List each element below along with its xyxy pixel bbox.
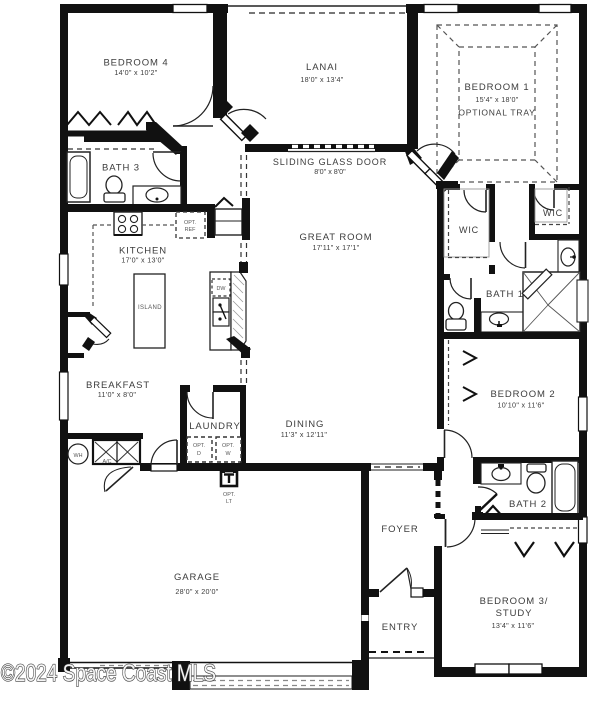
svg-text:11'0" x 8'0": 11'0" x 8'0" bbox=[98, 390, 137, 399]
svg-text:WIC: WIC bbox=[459, 225, 479, 235]
svg-text:OPT.: OPT. bbox=[193, 443, 205, 449]
svg-text:STUDY: STUDY bbox=[496, 608, 533, 619]
svg-text:28'0" x 20'0": 28'0" x 20'0" bbox=[175, 587, 218, 596]
svg-text:18'0" x 13'4": 18'0" x 13'4" bbox=[300, 75, 343, 84]
svg-text:GREAT ROOM: GREAT ROOM bbox=[299, 232, 372, 243]
svg-text:ENTRY: ENTRY bbox=[382, 622, 419, 633]
svg-text:17'11" x 17'1": 17'11" x 17'1" bbox=[312, 243, 359, 252]
svg-text:BATH 1: BATH 1 bbox=[486, 289, 524, 300]
svg-text:LAUNDRY: LAUNDRY bbox=[189, 421, 241, 432]
svg-text:REF: REF bbox=[185, 227, 196, 233]
svg-text:14'0" x 10'2": 14'0" x 10'2" bbox=[114, 68, 157, 77]
svg-text:BEDROOM 3/: BEDROOM 3/ bbox=[480, 596, 549, 607]
svg-text:DINING: DINING bbox=[286, 419, 325, 430]
svg-text:BATH 3: BATH 3 bbox=[102, 163, 140, 174]
svg-text:LT: LT bbox=[226, 499, 233, 505]
svg-text:BEDROOM 1: BEDROOM 1 bbox=[464, 82, 529, 93]
svg-text:OPT.: OPT. bbox=[184, 220, 196, 226]
svg-text:©2024 Space Coast MLS: ©2024 Space Coast MLS bbox=[1, 660, 216, 687]
svg-text:8'0" x 8'0": 8'0" x 8'0" bbox=[314, 167, 346, 176]
svg-text:13'4" x 11'6": 13'4" x 11'6" bbox=[492, 621, 535, 630]
svg-text:OPT.: OPT. bbox=[222, 443, 234, 449]
svg-text:ISLAND: ISLAND bbox=[138, 305, 162, 311]
svg-text:17'0" x 13'0": 17'0" x 13'0" bbox=[121, 256, 164, 265]
svg-text:OPTIONAL TRAY: OPTIONAL TRAY bbox=[458, 108, 535, 118]
svg-text:OPT.: OPT. bbox=[223, 492, 235, 498]
svg-text:BEDROOM 4: BEDROOM 4 bbox=[103, 58, 168, 69]
svg-text:BATH 2: BATH 2 bbox=[509, 499, 547, 510]
svg-text:GARAGE: GARAGE bbox=[174, 572, 220, 583]
svg-text:11'3" x 12'11": 11'3" x 12'11" bbox=[281, 430, 328, 439]
svg-text:DW: DW bbox=[217, 286, 227, 292]
svg-text:LANAI: LANAI bbox=[306, 62, 338, 73]
svg-text:D: D bbox=[197, 451, 201, 457]
svg-text:WIC: WIC bbox=[543, 208, 563, 218]
svg-text:A/C: A/C bbox=[103, 459, 112, 465]
svg-text:SLIDING GLASS DOOR: SLIDING GLASS DOOR bbox=[273, 157, 387, 167]
svg-text:WH: WH bbox=[74, 453, 83, 459]
svg-text:FOYER: FOYER bbox=[381, 524, 418, 535]
svg-text:15'4" x 18'0": 15'4" x 18'0" bbox=[475, 95, 518, 104]
svg-text:10'10" x 11'6": 10'10" x 11'6" bbox=[497, 401, 544, 410]
svg-text:BEDROOM 2: BEDROOM 2 bbox=[490, 389, 555, 400]
